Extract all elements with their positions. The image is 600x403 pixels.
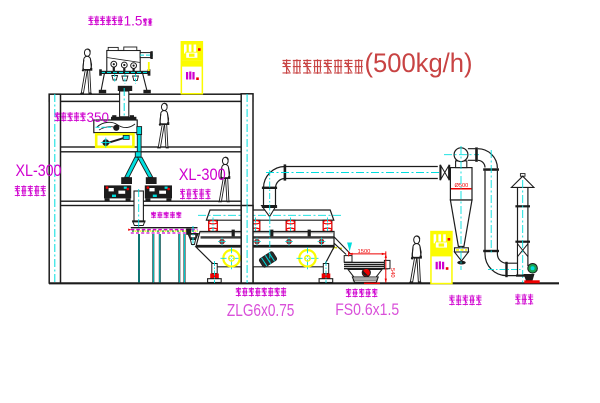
svg-text:(500kg/h): (500kg/h) xyxy=(365,48,473,78)
svg-text:540: 540 xyxy=(389,268,395,278)
svg-text:XL-300: XL-300 xyxy=(16,162,62,180)
svg-text:1.5: 1.5 xyxy=(124,14,143,29)
svg-text:XL-300: XL-300 xyxy=(179,166,226,184)
svg-text:350: 350 xyxy=(87,110,110,125)
svg-text:FS0.6x1.5: FS0.6x1.5 xyxy=(335,300,399,319)
svg-text:ZLG6x0.75: ZLG6x0.75 xyxy=(227,300,295,320)
svg-text:1500: 1500 xyxy=(358,249,371,255)
